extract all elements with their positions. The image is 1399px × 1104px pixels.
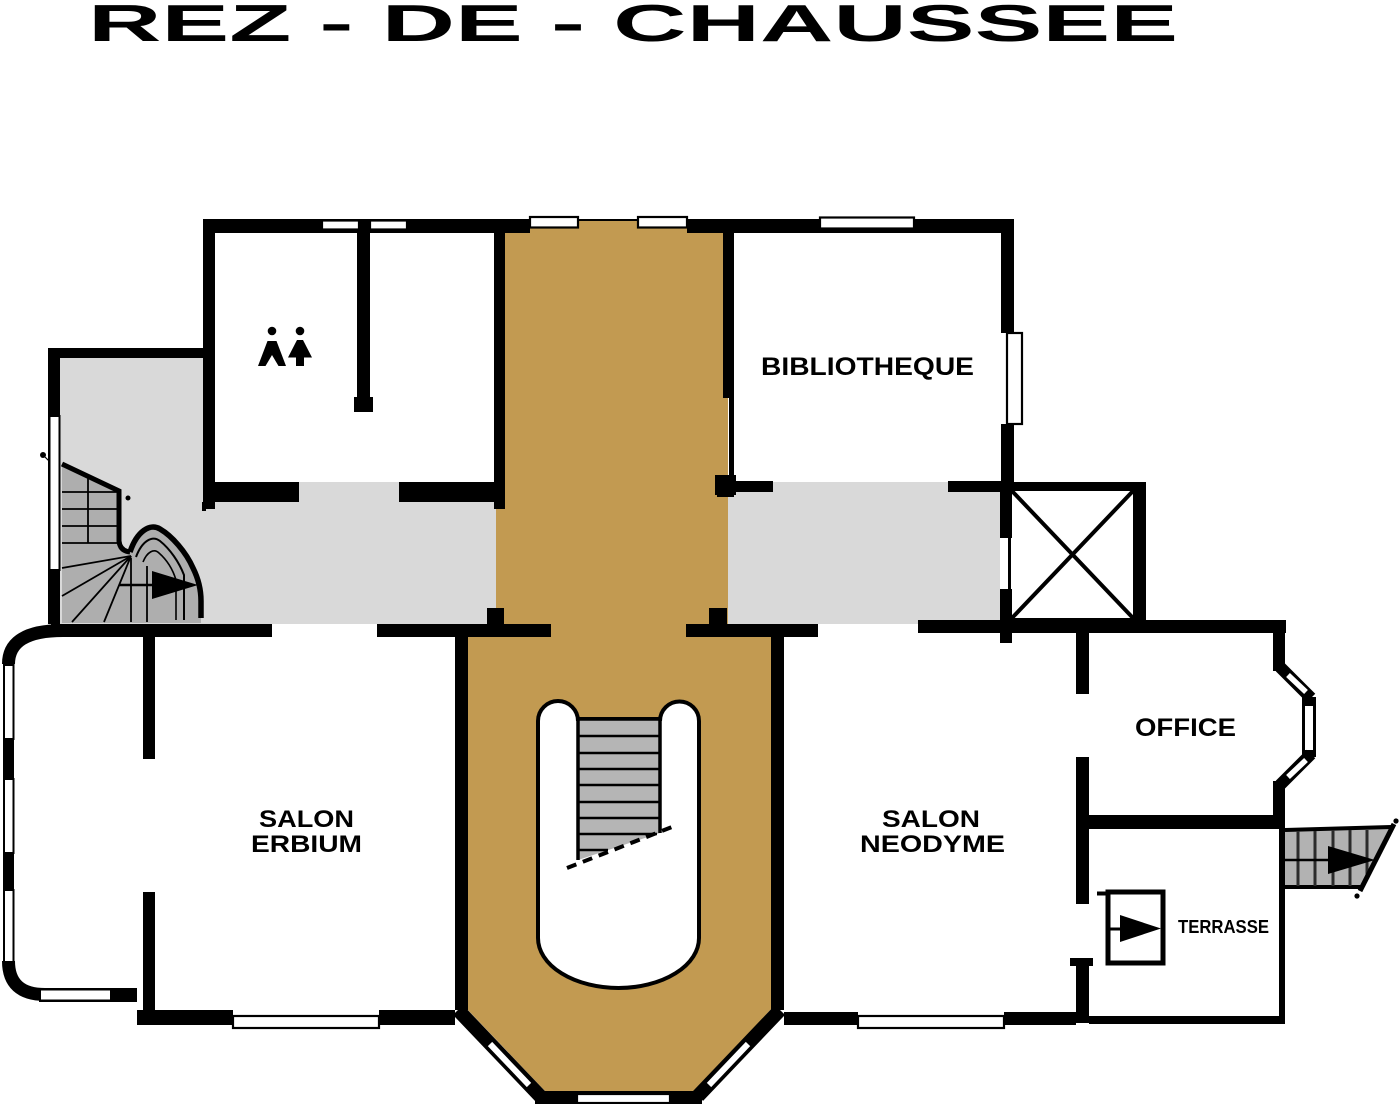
svg-text:REZ - DE - CHAUSSEE: REZ - DE - CHAUSSEE (88, 0, 1178, 53)
svg-text:ERBIUM: ERBIUM (251, 831, 362, 858)
svg-text:SALON: SALON (259, 806, 354, 833)
svg-text:NEODYME: NEODYME (860, 831, 1005, 858)
svg-text:OFFICE: OFFICE (1135, 714, 1236, 742)
svg-text:BIBLIOTHEQUE: BIBLIOTHEQUE (761, 353, 974, 381)
svg-text:SALON: SALON (882, 806, 980, 833)
svg-text:TERRASSE: TERRASSE (1178, 917, 1269, 937)
